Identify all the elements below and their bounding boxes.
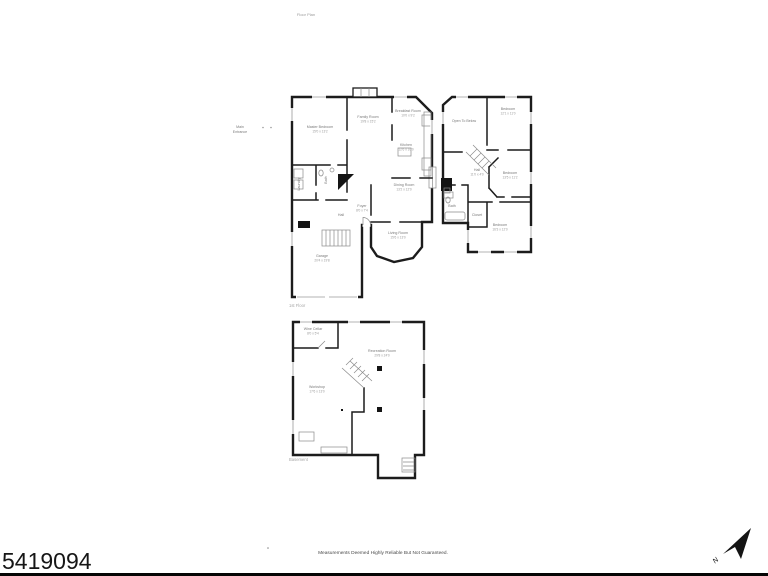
room-label-laundry: Laundry bbox=[297, 177, 301, 190]
room-label-bath-first: Bath bbox=[324, 176, 328, 183]
room-dims-dining-room: 13'2 x 12'0 bbox=[396, 188, 411, 192]
chimney-second-floor bbox=[441, 178, 452, 191]
basement-caption: Basement bbox=[289, 457, 309, 462]
room-label-workshop: Workshop bbox=[309, 385, 325, 389]
room-dims-hall-second: 11'0 x 4'0 bbox=[470, 173, 483, 177]
room-label-living-room: Living Room bbox=[388, 231, 408, 235]
room-dims-breakfast-room: 10'0 x 9'2 bbox=[401, 114, 415, 118]
footer-dot bbox=[267, 547, 269, 549]
room-label-master-bedroom: Master Bedroom bbox=[307, 125, 334, 129]
room-label-kitchen: Kitchen bbox=[400, 143, 412, 147]
mls-number: 5419094 bbox=[2, 548, 92, 574]
room-dims-bedroom-front: 12'1 x 11'0 bbox=[501, 112, 516, 116]
chimney-block bbox=[298, 221, 310, 228]
room-dims-family-room: 19'8 x 15'2 bbox=[360, 120, 375, 124]
room-label-open-to-below: Open To Below bbox=[452, 119, 477, 123]
room-dims-garage: 20'4 x 19'8 bbox=[314, 259, 329, 263]
first-floor-caption: 1st Floor bbox=[289, 303, 306, 308]
room-label-garage: Garage bbox=[316, 254, 328, 258]
room-dims-bedroom-middle: 13'5 x 11'2 bbox=[503, 176, 518, 180]
room-label-wine-cellar: Wine Cellar bbox=[304, 327, 323, 331]
disclaimer-text: Measurements Deemed Highly Reliable But … bbox=[318, 550, 448, 556]
room-label-hall-second: Hall bbox=[474, 168, 480, 172]
garage-doors bbox=[296, 295, 358, 299]
room-label-breakfast-room: Breakfast Room bbox=[395, 109, 421, 113]
room-dims-master-bedroom: 15'0 x 13'2 bbox=[312, 130, 327, 134]
room-label-closet: Closet bbox=[472, 213, 482, 217]
room-label-bedroom-rear: Bedroom bbox=[493, 223, 508, 227]
room-dims-bedroom-rear: 16'3 x 12'0 bbox=[492, 228, 507, 232]
room-label-recreation-room: Recreation Room bbox=[368, 349, 396, 353]
room-dims-living-room: 15'6 x 13'0 bbox=[390, 236, 405, 240]
basement-exterior-walls bbox=[293, 322, 424, 478]
plan-title-text: Floor Plan bbox=[297, 12, 315, 17]
background bbox=[0, 0, 768, 576]
room-dims-foyer: 8'0 x 7'4 bbox=[356, 209, 368, 213]
basement-plan: Wine Cellar 8'0 x 5'4 Recreation Room 29… bbox=[289, 322, 424, 478]
support-column bbox=[377, 366, 382, 371]
room-label-foyer: Foyer bbox=[357, 204, 367, 208]
room-label-bedroom-front: Bedroom bbox=[501, 107, 516, 111]
room-dims-recreation-room: 29'8 x 24'0 bbox=[374, 354, 389, 358]
bay-window bbox=[353, 88, 377, 97]
side-note-dot bbox=[262, 127, 264, 129]
room-label-family-room: Family Room bbox=[357, 115, 378, 119]
side-note-line2: Entrance bbox=[233, 130, 247, 134]
room-label-bedroom-middle: Bedroom bbox=[503, 171, 518, 175]
support-column bbox=[377, 407, 382, 412]
room-label-dining-room: Dining Room bbox=[394, 183, 415, 187]
room-dims-wine-cellar: 8'0 x 5'4 bbox=[307, 332, 319, 336]
room-label-hall-first: Hall bbox=[338, 213, 344, 217]
floor-plan-page: Floor Plan bbox=[0, 0, 768, 576]
room-dims-kitchen: 12'6 x 10'0 bbox=[398, 148, 413, 152]
side-note-dot bbox=[270, 127, 272, 129]
room-dims-workshop: 17'6 x 13'0 bbox=[309, 390, 324, 394]
side-note-line1: Main bbox=[236, 125, 244, 129]
room-label-bath-second: Bath bbox=[448, 204, 455, 208]
post-marker bbox=[341, 409, 343, 411]
floor-plan-canvas: Floor Plan bbox=[0, 0, 768, 576]
